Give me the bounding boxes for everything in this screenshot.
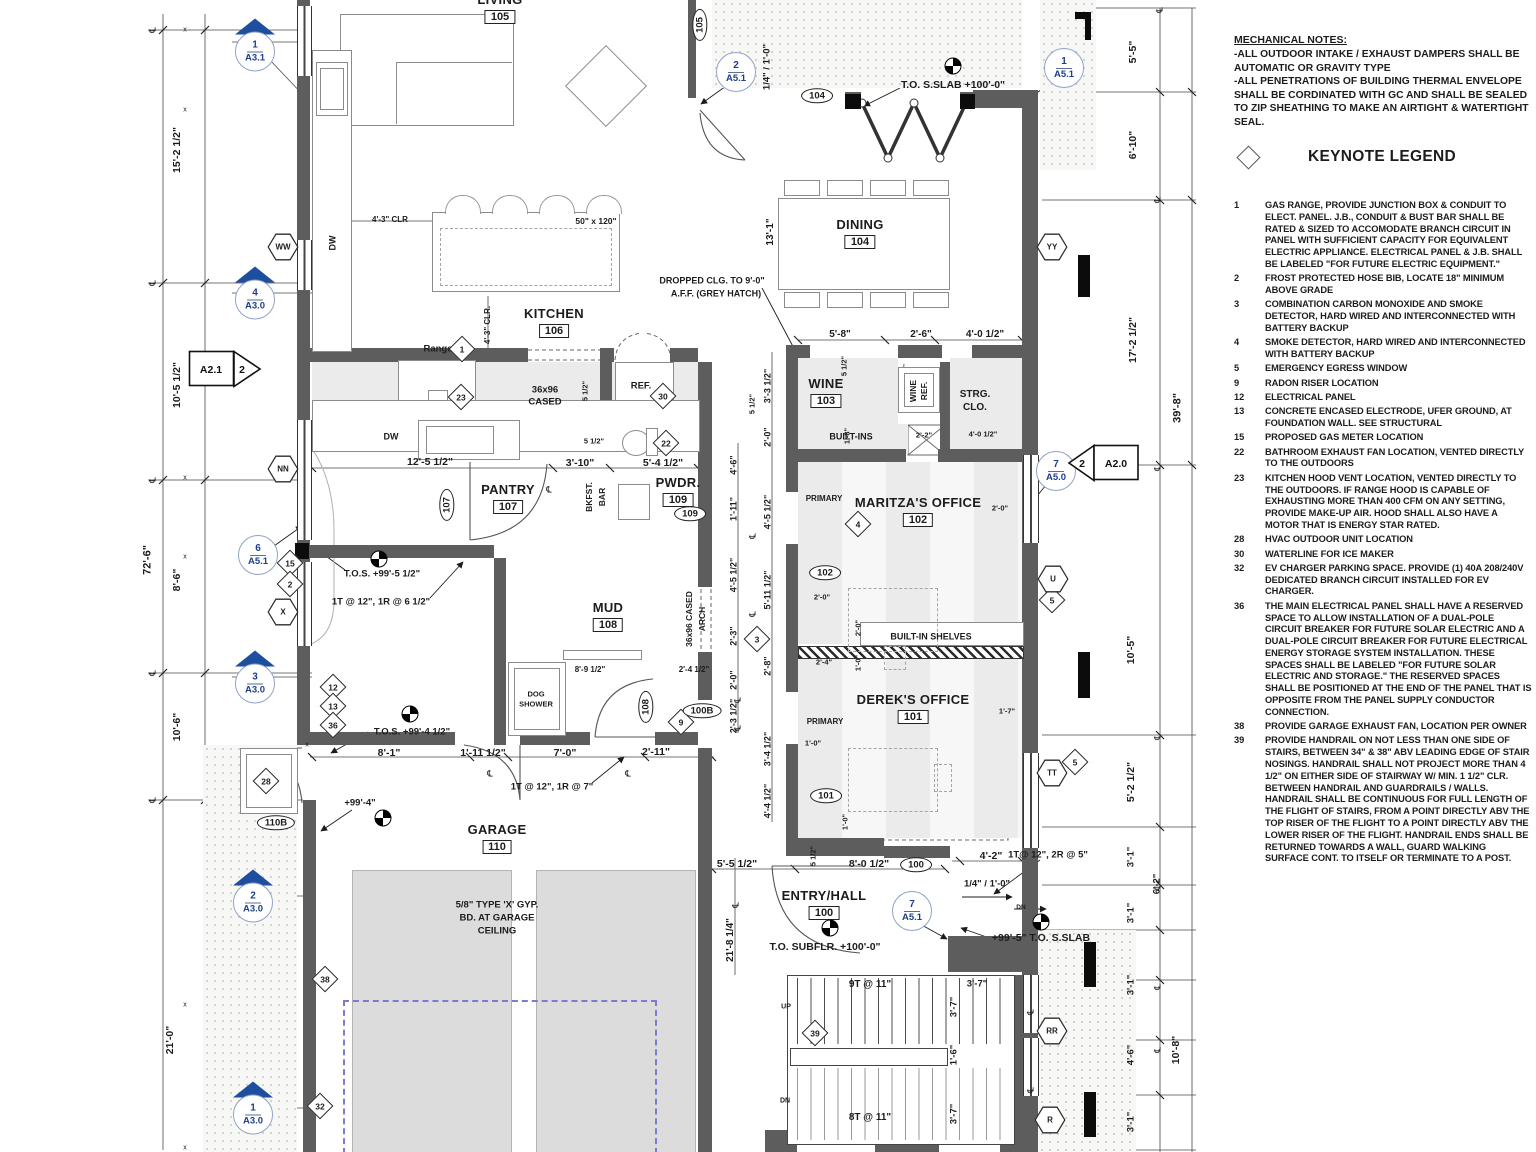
kitchen-island <box>440 228 612 286</box>
room-label-garage: GARAGE110 <box>468 822 527 855</box>
room-number: 102 <box>903 513 933 527</box>
stair-treads-lower <box>797 1068 1009 1140</box>
keynote-diamond-3: 3 <box>744 626 771 653</box>
wall <box>898 345 942 358</box>
window-tag-label: YY <box>1038 235 1066 259</box>
bar-stool <box>586 195 622 214</box>
annotation-text: 10'-5 1/2" <box>172 362 183 408</box>
annotation-text: SHOWER <box>519 700 553 708</box>
window-tag-label: NN <box>269 457 297 481</box>
centerline-symbol: ℄ <box>735 697 744 703</box>
room-name: MUD <box>593 600 624 615</box>
sheet-number: A5.1 <box>1054 69 1074 81</box>
room-label-wine: WINE103 <box>808 376 843 409</box>
annotation-text: 6'-10" <box>1128 131 1139 160</box>
wall <box>884 846 950 858</box>
side-table <box>565 45 647 127</box>
annotation-text: 2'-0" <box>854 620 862 636</box>
dining-chair <box>827 292 863 308</box>
annotation-text: DW <box>329 236 338 251</box>
sofa <box>340 14 514 126</box>
marker-bubble: 2A3.0 <box>233 883 273 923</box>
annotation-text: 2'-6" <box>910 330 932 340</box>
marker-bubble: 7A5.1 <box>892 891 932 931</box>
centerline-symbol: ℄ <box>1155 884 1164 890</box>
room-label-living: LIVING105 <box>477 0 522 25</box>
annotation-text: DN <box>1016 905 1025 912</box>
wall <box>786 544 798 692</box>
section-marker-6-A51: 6A5.1 <box>238 535 278 575</box>
annotation-text: x <box>183 1002 187 1009</box>
room-name: ENTRY/HALL <box>782 888 867 903</box>
centerline-symbol: ℄ <box>150 797 159 803</box>
dining-chair <box>913 180 949 196</box>
annotation-text: 3'-1" <box>1126 1112 1136 1133</box>
annotation-text: 2'-8" <box>764 656 773 675</box>
stair-handrail <box>790 1048 948 1066</box>
wall <box>310 545 494 558</box>
window <box>1023 975 1039 1033</box>
wall <box>798 449 906 462</box>
annotation-text: +99'-4" <box>344 798 375 808</box>
annotation-text: STRG. <box>960 390 991 400</box>
annotation-text: 1/4" / 1'-0" <box>964 879 1010 889</box>
section-marker-2-A51: 2A5.1 <box>716 52 756 92</box>
svg-text:2: 2 <box>239 364 245 376</box>
keynote-diamond-number: 22 <box>658 435 675 452</box>
centerline-symbol: ℄ <box>1028 1087 1037 1093</box>
centerline-symbol: ℄ <box>1157 7 1166 13</box>
plan-canvas: 72'-6"15'-2 1/2"10'-5 1/2"8'-6"10'-6"21'… <box>0 0 1536 1152</box>
keynote-diamond-number: 32 <box>312 1098 329 1115</box>
centerline-symbol: ℄ <box>750 533 759 539</box>
detail-number: 6 <box>250 543 266 556</box>
annotation-text: 3'-3 1/2" <box>764 369 773 403</box>
annotation-text: +99'-5" T.O. S.SLAB <box>992 933 1090 944</box>
annotation-text: 15'-2 1/2" <box>172 127 183 173</box>
wall-fixture <box>1085 12 1091 40</box>
annotation-text: DN <box>780 1098 790 1105</box>
annotation-text: PRIMARY <box>806 495 843 503</box>
annotation-text: 4'-0 1/2" <box>969 430 998 438</box>
room-name: WINE <box>808 376 843 391</box>
marker-bubble: 4A3.0 <box>235 280 275 320</box>
wall-fixture <box>1084 942 1096 987</box>
annotation-text: DOG <box>527 690 544 698</box>
sheet-number: A3.0 <box>243 1115 263 1127</box>
annotation-text: 2'-11" <box>642 747 670 758</box>
sofa <box>396 62 397 124</box>
keynote-diamond-number: 36 <box>325 717 342 734</box>
window-tag-U: U <box>1038 566 1069 593</box>
annotation-text: WINE <box>909 380 918 402</box>
annotation-text: ARCH <box>698 607 707 632</box>
wall-fixture <box>845 94 861 109</box>
keynote-diamond-number: 2 <box>282 576 299 593</box>
annotation-text: REF. <box>920 382 929 400</box>
annotation-text: 4'-5 1/2" <box>764 495 773 529</box>
room-name: DEREK'S OFFICE <box>857 692 970 707</box>
annotation-text: 2'-0" <box>730 670 739 689</box>
annotation-text: 4'-6" <box>1126 1045 1136 1066</box>
detail-number: 1 <box>1056 56 1072 69</box>
window-tag-label: R <box>1036 1108 1064 1132</box>
room-name: PANTRY <box>481 482 535 497</box>
section-marker-1-A31: 1A3.1 <box>235 19 275 72</box>
spot-elevation-symbol <box>1033 914 1050 931</box>
door-tag-100: 100 <box>900 857 932 872</box>
annotation-text: 5'-11 1/2" <box>764 571 773 610</box>
sheet-number: A5.1 <box>248 556 268 568</box>
ev-charger-space <box>343 1000 657 1152</box>
sofa <box>396 62 512 63</box>
annotation-text: A.F.F. (GREY HATCH) <box>671 290 761 299</box>
keynote-diamond-number: 39 <box>807 1025 824 1042</box>
spot-elevation-symbol <box>945 58 962 75</box>
marker-bubble: 1A5.1 <box>1044 48 1084 88</box>
window-tag-YY: YY <box>1037 234 1068 261</box>
wall-fixture <box>1078 255 1090 297</box>
wall <box>494 558 506 745</box>
annotation-text: 1'-0" <box>854 655 862 671</box>
keynote-diamond-number: 15 <box>282 555 299 572</box>
annotation-text: BUILT-IN SHELVES <box>890 633 971 642</box>
dining-chair <box>784 292 820 308</box>
kitchen-sink <box>426 426 494 454</box>
annotation-text: x <box>183 27 187 34</box>
detail-number: 3 <box>247 671 263 684</box>
keynote-diamond-number: 4 <box>850 516 867 533</box>
annotation-text: 36x96 CASED <box>685 591 694 647</box>
annotation-text: DW <box>384 433 399 442</box>
annotation-text: T.O. S.SLAB +100'-0" <box>901 80 1005 91</box>
room-number: 101 <box>898 710 928 724</box>
bar-stool <box>539 195 575 214</box>
wall <box>655 732 698 745</box>
annotation-text: x <box>183 107 187 114</box>
annotation-text: 10'-5" <box>1126 636 1137 665</box>
room-label-pwdr-: PWDR.109 <box>656 475 701 508</box>
wall <box>972 345 1022 358</box>
annotation-text: 1'-8" <box>843 428 851 444</box>
annotation-text: 5'-5" <box>1128 41 1139 64</box>
keynote-diamond-number: 1 <box>454 341 471 358</box>
annotation-text: 3'-1" <box>1126 975 1136 996</box>
elevation-marker-A20: A2.02 <box>1066 444 1142 482</box>
annotation-text: 4'-0 1/2" <box>966 330 1004 340</box>
sheet-number: A5.1 <box>726 73 746 85</box>
keynote-diamond-number: 9 <box>673 714 690 731</box>
centerline-symbol: ℄ <box>1155 1047 1164 1053</box>
section-marker-2-A30: 2A3.0 <box>233 870 273 923</box>
window-tag-label: TT <box>1038 761 1066 785</box>
annotation-text: 1'-11" <box>730 497 739 521</box>
spot-elevation-symbol <box>822 920 839 937</box>
annotation-text: 3'-1" <box>1126 903 1136 924</box>
room-number: 105 <box>485 10 515 24</box>
annotation-text: 5'-8" <box>829 330 851 340</box>
detail-number: 4 <box>247 287 263 300</box>
kitchen-sink <box>320 68 344 110</box>
window <box>297 6 312 76</box>
detail-number: 2 <box>245 890 261 903</box>
section-marker-7-A51: 7A5.1 <box>892 891 932 931</box>
window-tag-NN: NN <box>268 456 299 483</box>
annotation-text: 17'-2 1/2" <box>1128 317 1139 363</box>
annotation-text: 4'-3" CLR. <box>484 306 492 344</box>
centerline-symbol: ℄ <box>150 477 159 483</box>
centerline-symbol: ℄ <box>1155 197 1164 203</box>
elevation-marker-A21: A2.12 <box>188 350 264 388</box>
desk <box>848 748 938 812</box>
centerline-symbol: ℄ <box>1028 1009 1037 1015</box>
annotation-text: 2'-0" <box>764 427 773 446</box>
annotation-text: x <box>183 475 187 482</box>
section-marker-3-A30: 3A3.0 <box>235 651 275 704</box>
annotation-text: 1'-7" <box>999 707 1015 715</box>
marker-bubble: 3A3.0 <box>235 664 275 704</box>
annotation-text: 5 1/2" <box>809 846 817 866</box>
centerline-symbol: ℄ <box>625 771 631 780</box>
wall-fixture <box>960 94 975 109</box>
desk-chair <box>934 764 952 792</box>
annotation-text: 50" x 120" <box>575 217 616 226</box>
annotation-text: 4'-2" <box>980 851 1003 862</box>
wall-fixture <box>1078 652 1090 698</box>
window <box>297 562 312 646</box>
annotation-text: 1'-0" <box>805 739 821 747</box>
annotation-text: 4'-5 1/2" <box>730 558 739 592</box>
centerline-symbol: ℄ <box>1155 984 1164 990</box>
room-label-pantry: PANTRY107 <box>481 482 535 515</box>
annotation-text: T.O.S. +99'-4 1/2" <box>374 727 450 737</box>
section-marker-1-A51: 1A5.1 <box>1044 48 1084 88</box>
concrete-paving <box>712 0 1022 88</box>
annotation-text: T.O. SUBFLR. +100'-0" <box>769 942 880 953</box>
room-name: KITCHEN <box>524 306 584 321</box>
room-number: 108 <box>593 618 623 632</box>
detail-number: 1 <box>245 1102 261 1115</box>
sheet-number: A5.1 <box>902 912 922 924</box>
room-name: LIVING <box>477 0 522 7</box>
room-name: GARAGE <box>468 822 527 837</box>
spot-elevation-symbol <box>375 810 392 827</box>
annotation-text: 2'-0" <box>992 504 1008 512</box>
annotation-text: 3'-7" <box>949 1104 959 1125</box>
room-label-mud: MUD108 <box>593 600 624 633</box>
annotation-text: 21'-8 1/4" <box>726 918 736 962</box>
window-tag-label: WW <box>269 235 297 259</box>
annotation-text: 10'-8" <box>1171 1036 1182 1065</box>
desk-chair <box>884 646 906 670</box>
door-tag-105: 105 <box>692 9 707 41</box>
annotation-text: 12'-5 1/2" <box>407 457 453 468</box>
window-tag-X: X <box>268 599 299 626</box>
room-label-entry-hall: ENTRY/HALL100 <box>782 888 867 921</box>
room-label-kitchen: KITCHEN106 <box>524 306 584 339</box>
centerline-symbol: ℄ <box>733 902 742 908</box>
annotation-text: 1T @ 12", 1R @ 7" <box>511 782 593 792</box>
bar-stool <box>492 195 528 214</box>
dining-chair <box>870 180 906 196</box>
centerline-symbol: ℄ <box>1155 734 1164 740</box>
annotation-text: 4'-6" <box>730 455 739 474</box>
keynote-diamond-number: 38 <box>317 971 334 988</box>
centerline-symbol: ℄ <box>150 27 159 33</box>
annotation-text: 9T @ 11" <box>849 980 891 990</box>
annotation-text: x <box>183 1145 187 1152</box>
detail-number: 7 <box>1048 459 1064 472</box>
door-tag-108: 108 <box>638 691 653 723</box>
annotation-text: 1/4" / 1'-0" <box>762 44 772 90</box>
annotation-text: 3'-10" <box>566 458 595 469</box>
sheet-number: A3.0 <box>245 300 265 312</box>
dining-chair <box>827 180 863 196</box>
room-label-derek-s-office: DEREK'S OFFICE101 <box>857 692 970 725</box>
annotation-text: 21'-0" <box>165 1026 176 1055</box>
mud-bench <box>563 650 642 660</box>
centerline-symbol: ℄ <box>150 670 159 676</box>
annotation-text: 1'-0" <box>841 814 849 830</box>
annotation-text: 1'-6" <box>949 1045 959 1066</box>
centerline-symbol: ℄ <box>750 611 759 617</box>
dining-chair <box>913 292 949 308</box>
annotation-text: BAR <box>598 488 607 506</box>
detail-number: 2 <box>728 60 744 73</box>
wall <box>698 748 712 1152</box>
annotation-text: x <box>305 742 309 749</box>
centerline-symbol: ℄ <box>1155 465 1164 471</box>
floor-plan-sheet: MECHANICAL NOTES: -ALL OUTDOOR INTAKE / … <box>0 0 1536 1152</box>
annotation-text: 1'-11 1/2" <box>460 748 505 759</box>
annotation-text: 2'-2" <box>916 431 932 439</box>
annotation-text: 72'-6" <box>143 545 154 575</box>
window-tag-label: RR <box>1038 1019 1066 1043</box>
room-number: 107 <box>493 500 523 514</box>
room-number: 110 <box>482 840 512 854</box>
room-label-dining: DINING104 <box>836 217 883 250</box>
annotation-text: 10'-6" <box>172 713 183 742</box>
dining-chair <box>784 180 820 196</box>
spot-elevation-symbol <box>371 551 388 568</box>
annotation-text: 8'-9 1/2" <box>575 666 606 674</box>
bar-stool <box>445 195 481 214</box>
annotation-text: 5'-5 1/2" <box>717 859 757 870</box>
annotation-text: REF. <box>631 381 652 391</box>
dining-chair <box>870 292 906 308</box>
annotation-text: 3'-1" <box>1126 847 1136 868</box>
annotation-text: 1T @ 12", 1R @ 6 1/2" <box>332 597 430 607</box>
annotation-text: 5'-2 1/2" <box>1126 762 1137 802</box>
room-number: 103 <box>811 394 841 408</box>
annotation-text: BD. AT GARAGE <box>460 913 535 923</box>
wall <box>786 744 798 840</box>
window-tag-WW: WW <box>268 234 299 261</box>
wall <box>698 652 712 700</box>
section-marker-4-A30: 4A3.0 <box>235 267 275 320</box>
door-tag-100B: 100B <box>683 703 722 718</box>
annotation-text: 5 1/2" <box>840 356 848 376</box>
door-tag-107: 107 <box>439 489 454 521</box>
room-number: 104 <box>845 235 875 249</box>
sheet-number: A3.0 <box>243 903 263 915</box>
room-number: 106 <box>539 324 569 338</box>
window <box>297 240 312 290</box>
svg-text:2: 2 <box>1079 458 1085 470</box>
wall-fixture <box>1084 1092 1096 1137</box>
wall <box>670 348 698 362</box>
marker-bubble: 6A5.1 <box>238 535 278 575</box>
spot-elevation-symbol <box>402 706 419 723</box>
sheet-number: A3.1 <box>245 52 265 64</box>
sheet-number: A5.0 <box>1046 472 1066 484</box>
annotation-text: 5 1/2" <box>584 437 604 445</box>
sheet-number: A3.0 <box>245 684 265 696</box>
keynote-diamond-number: 5 <box>1044 592 1061 609</box>
centerline-symbol: ℄ <box>150 280 159 286</box>
detail-number: 7 <box>904 899 920 912</box>
annotation-text: T.O.S. +99'-5 1/2" <box>344 569 420 579</box>
annotation-text: BKFST. <box>585 482 594 512</box>
room-name: PWDR. <box>656 475 701 490</box>
room-name: MARITZA'S OFFICE <box>855 495 981 510</box>
annotation-text: PRIMARY <box>807 718 844 726</box>
annotation-text: 2'-4 1/2" <box>679 666 710 674</box>
keynote-diamond-number: 3 <box>749 631 766 648</box>
centerline-symbol: ℄ <box>735 725 744 731</box>
room-number: 100 <box>809 906 839 920</box>
annotation-text: CEILING <box>478 926 517 936</box>
annotation-text: 8T @ 11" <box>849 1113 891 1123</box>
annotation-text: 3'-4 1/2" <box>764 732 773 766</box>
annotation-text: 3'-7" <box>949 997 959 1018</box>
detail-number: 1 <box>247 39 263 52</box>
door-tag-104: 104 <box>801 88 833 103</box>
window <box>297 420 312 540</box>
annotation-text: 2'-0" <box>814 593 830 601</box>
room-number: 109 <box>663 493 693 507</box>
window-tag-label: U <box>1039 567 1067 591</box>
wall <box>786 838 884 856</box>
centerline-symbol: ℄ <box>487 771 493 780</box>
annotation-text: 8'-1" <box>378 748 401 759</box>
centerline-symbol: ℄ <box>546 487 552 496</box>
annotation-text: 8'-6" <box>172 569 183 592</box>
room-name: DINING <box>836 217 883 232</box>
annotation-text: 4'-3" CLR <box>372 216 408 224</box>
annotation-text: x <box>183 554 187 561</box>
room-label-maritza-s-office: MARITZA'S OFFICE102 <box>855 495 981 528</box>
marker-bubble: 2A5.1 <box>716 52 756 92</box>
annotation-text: 39'-8" <box>1173 393 1184 423</box>
annotation-text: 4'-4 1/2" <box>764 784 773 818</box>
window-tag-label: X <box>269 600 297 624</box>
annotation-text: 2'-4" <box>816 658 832 666</box>
annotation-text: CLO. <box>963 403 987 413</box>
annotation-text: UP <box>781 1004 791 1011</box>
marker-bubble: 1A3.0 <box>233 1095 273 1135</box>
annotation-text: 5'-4 1/2" <box>643 458 683 469</box>
keynote-diamond-number: 23 <box>453 389 470 406</box>
annotation-text: 7'-0" <box>554 748 577 759</box>
annotation-text: 5 1/2" <box>748 394 756 414</box>
keynote-diamond-number: 28 <box>258 773 275 790</box>
svg-text:A2.0: A2.0 <box>1105 458 1127 470</box>
wall <box>940 362 950 449</box>
keynote-diamond-number: 30 <box>655 388 672 405</box>
powder-sink <box>618 484 650 520</box>
svg-text:A2.1: A2.1 <box>200 364 222 376</box>
